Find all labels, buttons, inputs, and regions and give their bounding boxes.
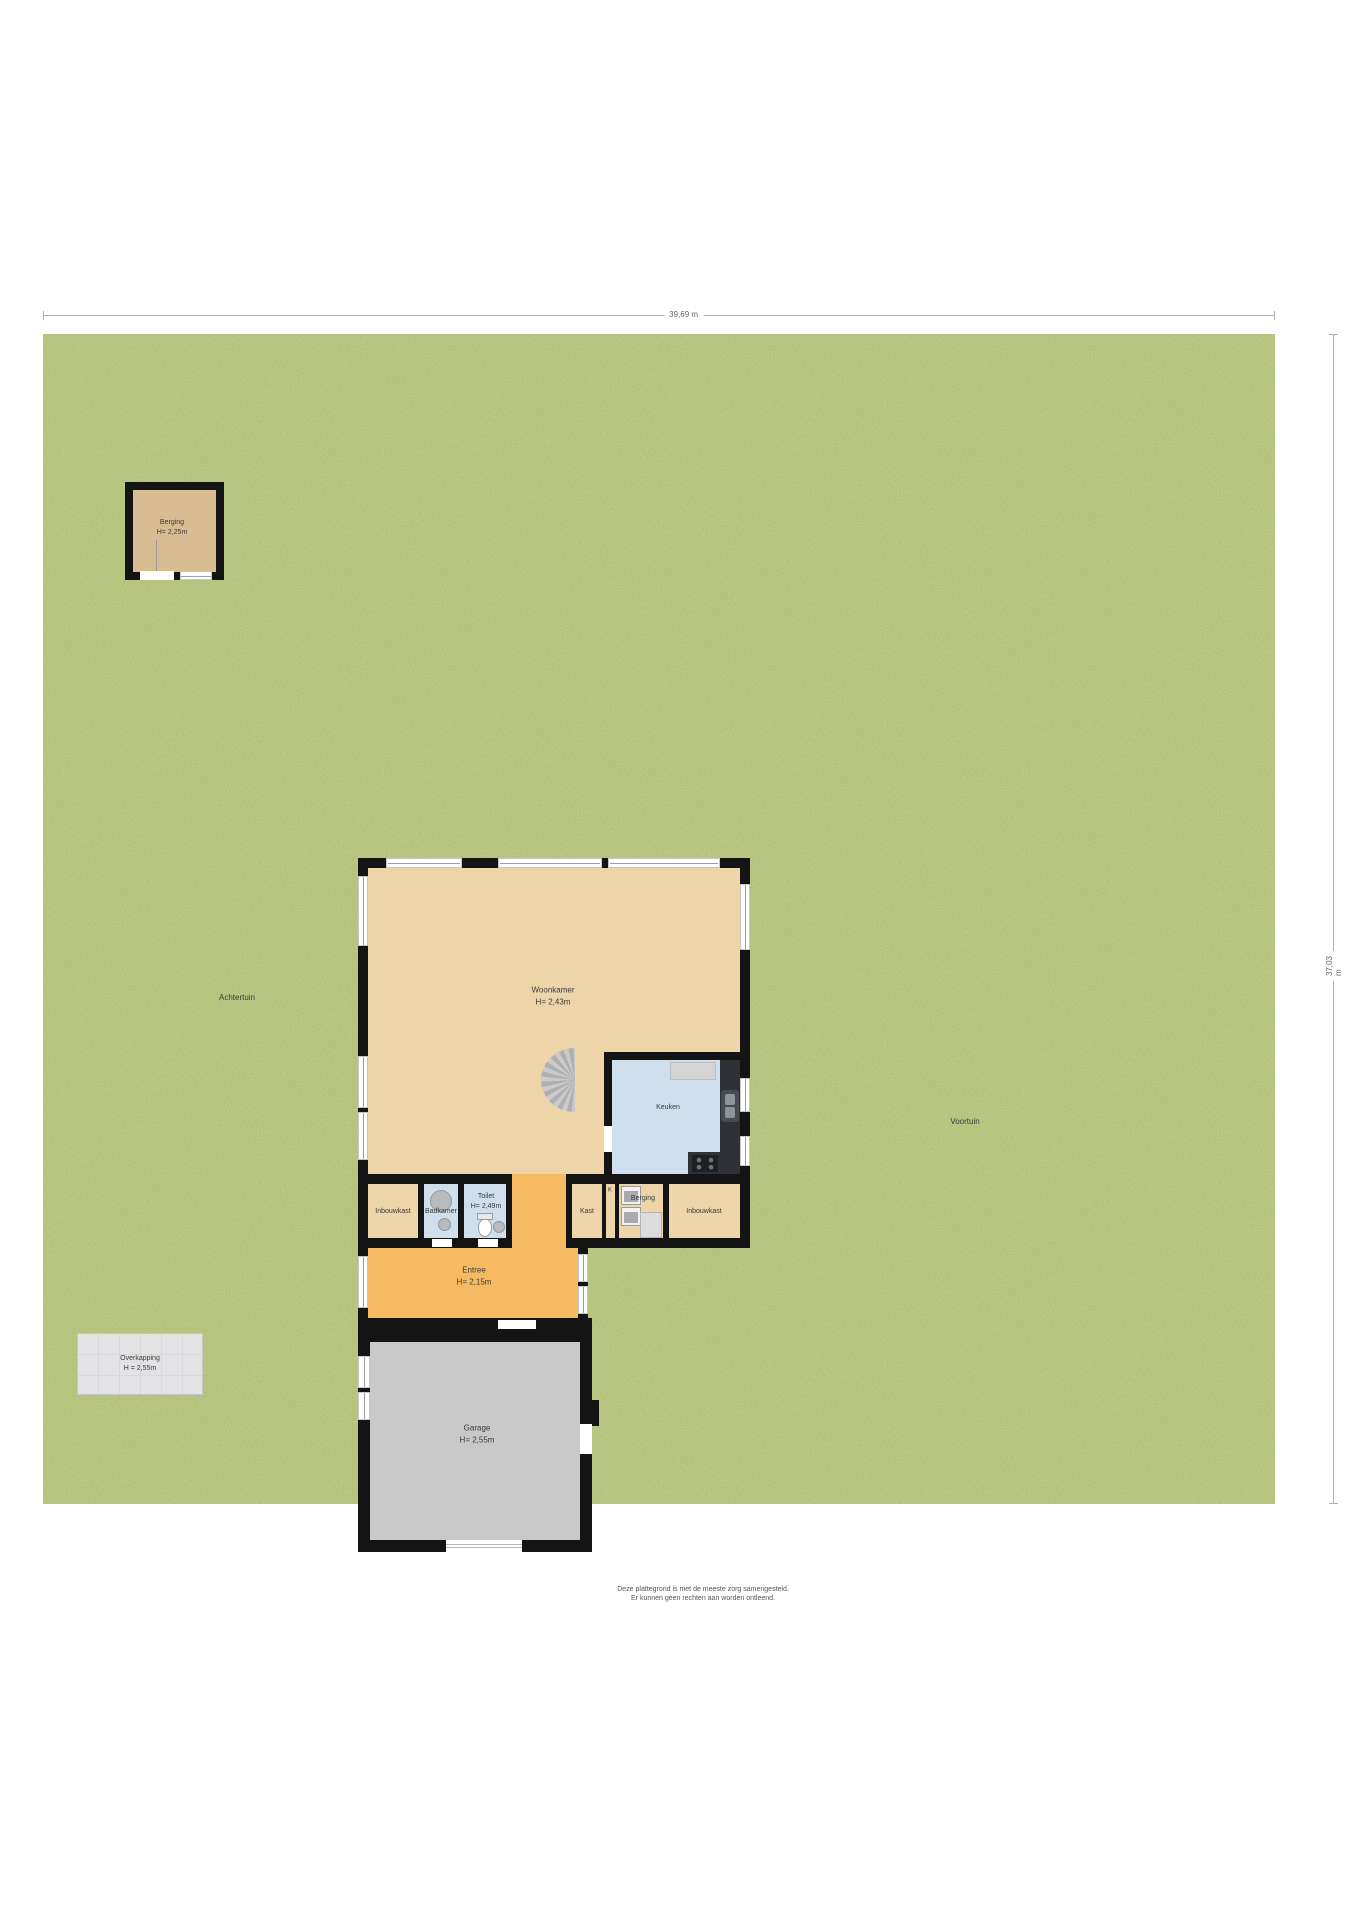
sink-bowl-top (725, 1094, 735, 1105)
garage-door-opening (498, 1320, 536, 1329)
water-heater-icon (640, 1212, 662, 1238)
window (740, 1078, 750, 1112)
bath-sink-icon (438, 1218, 451, 1231)
garage-side-door (580, 1424, 592, 1454)
inbouwkast-right-label: Inbouwkast (686, 1207, 721, 1217)
disclaimer-line-2: Er kunnen geen rechten aan worden ontlee… (617, 1594, 789, 1603)
kast-label: Kast (580, 1207, 594, 1217)
shed-label: BergingH= 2,25m (157, 518, 188, 538)
kitchen-counter-light (670, 1062, 716, 1080)
shed-door (140, 571, 174, 580)
hall-passage-floor (512, 1174, 566, 1248)
toilet-sink-icon (493, 1221, 505, 1233)
toilet-label: ToiletH= 2,49m (471, 1192, 502, 1212)
entree-garage-wall (358, 1318, 592, 1330)
dimension-right-line (1333, 334, 1334, 1504)
garage-door-leaf (592, 1400, 599, 1426)
kitchen-door-opening (604, 1126, 612, 1152)
toilet-door-opening (478, 1239, 498, 1247)
window (498, 858, 602, 868)
entree-label: EntreeH= 2,15m (457, 1264, 492, 1287)
garage-window (358, 1356, 370, 1388)
window (358, 1112, 368, 1160)
keuken-label: Keuken (656, 1103, 680, 1113)
dimension-right: 37,03 m (1326, 334, 1342, 1504)
kitchen-cooktop (692, 1155, 718, 1172)
dryer-icon (621, 1207, 641, 1226)
shed-door-leaf (156, 540, 157, 571)
window (358, 1056, 368, 1108)
dimension-right-label: 37,03 m (1325, 951, 1343, 981)
k-closet-label: K (608, 1187, 612, 1196)
window (358, 1256, 368, 1308)
window (578, 1286, 588, 1314)
dimension-top: 39,69 m (43, 308, 1275, 324)
toilet-icon (478, 1219, 492, 1237)
dimension-top-label: 39,69 m (664, 310, 703, 319)
woonkamer-label: WoonkamerH= 2,43m (532, 984, 575, 1007)
garden-front-label: Voortuin (950, 1116, 979, 1128)
garage-window (358, 1392, 370, 1420)
kitchen-left-wall (604, 1060, 612, 1174)
garden-back-label: Achtertuin (219, 992, 255, 1004)
kitchen-top-wall (604, 1052, 740, 1060)
sink-bowl-bottom (725, 1107, 735, 1118)
window (358, 876, 368, 946)
badkamer-door-opening (432, 1239, 452, 1247)
overkapping-label: OverkappingH = 2,55m (120, 1354, 160, 1374)
garage-label: GarageH= 2,55m (460, 1422, 495, 1445)
disclaimer-line-1: Deze plattegrond is met de meeste zorg s… (617, 1585, 789, 1594)
window (386, 858, 462, 868)
window (740, 884, 750, 950)
window (740, 1136, 750, 1166)
window (608, 858, 720, 868)
floorplan-page: 39,69 m 37,03 m Achtertuin Voortuin Berg… (0, 0, 1358, 1920)
shed-window (180, 571, 212, 580)
berging-inner-label: Berging (631, 1194, 655, 1204)
disclaimer: Deze plattegrond is met de meeste zorg s… (617, 1585, 789, 1604)
badkamer-label: Badkamer (425, 1207, 457, 1217)
dimension-top-line (43, 315, 1275, 316)
inbouwkast-left-label: Inbouwkast (375, 1207, 410, 1217)
garage-main-door (446, 1540, 522, 1552)
kitchen-sink (721, 1090, 739, 1122)
window (578, 1254, 588, 1282)
